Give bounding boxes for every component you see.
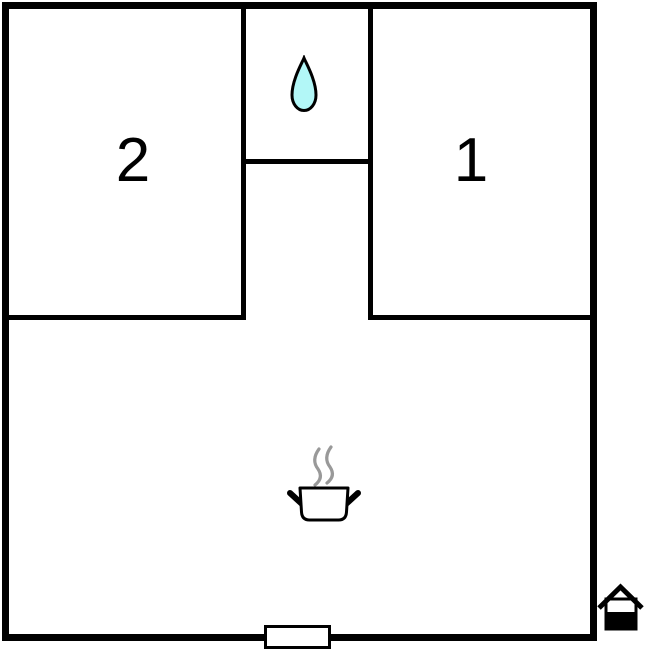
wall-outer-left xyxy=(2,2,9,641)
wall-bathroom-bottom xyxy=(241,159,373,164)
door-marker xyxy=(264,625,331,649)
pot-body xyxy=(300,488,348,520)
room-label-2: 2 xyxy=(116,130,150,192)
steam-line-left xyxy=(315,449,321,485)
water-drop-icon xyxy=(288,55,320,119)
cooking-pot-icon xyxy=(283,442,363,529)
house-icon xyxy=(596,582,644,639)
house-body-fill xyxy=(608,612,635,628)
wall-outer-right xyxy=(590,2,597,641)
room-label-1: 1 xyxy=(454,130,488,192)
steam-line-right xyxy=(327,447,333,483)
water-drop-shape xyxy=(292,58,316,111)
floorplan: 2 1 xyxy=(0,0,645,652)
wall-outer-top xyxy=(2,2,597,9)
